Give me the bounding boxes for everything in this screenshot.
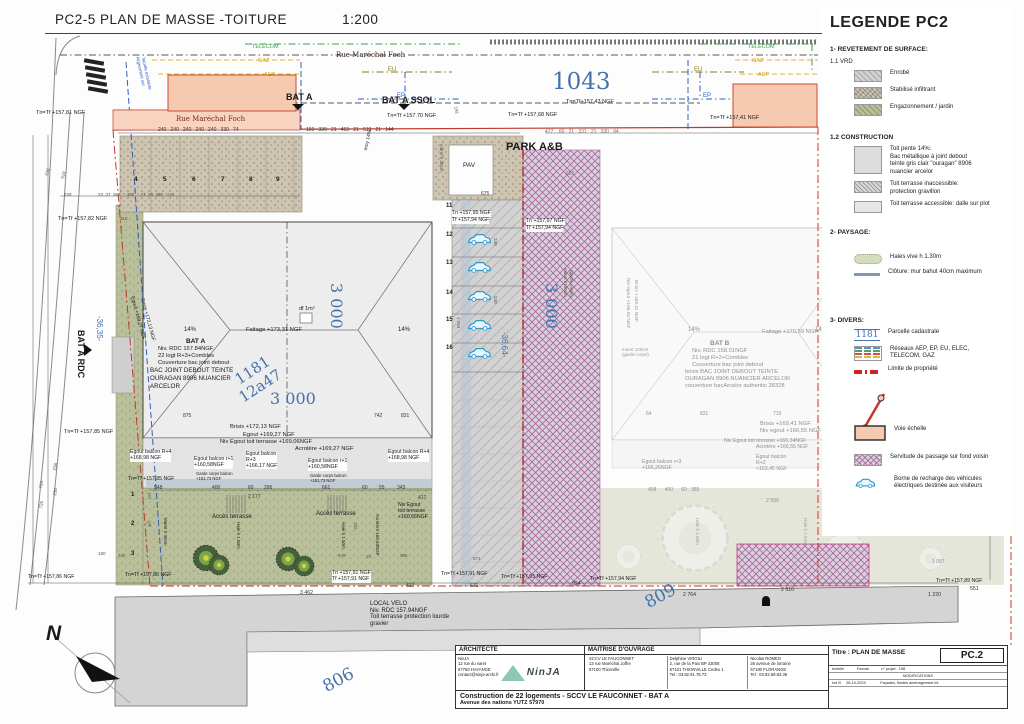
annotation-label: 3 000 (270, 390, 316, 408)
annotation-label: 3 000 (327, 283, 345, 329)
project-address: Avenue des nations YUTZ 57970 (460, 700, 824, 706)
annotation-label: Acrotère +166,55 NGF (756, 445, 808, 451)
ninja-logo: NinJA (501, 656, 561, 689)
annotation-label: Brisis +169,41 NGF (633, 280, 638, 322)
annotation-label: TELECOM (748, 44, 775, 50)
legend-title: LEGENDE PC2 (830, 14, 1010, 32)
mo-contact-1: Delphine VIRGILI 2, rue de la Paix BP 43… (667, 656, 746, 689)
annotation-label: Tn=Tf +157,86 NGF (28, 575, 74, 581)
annotation-label: 2 764 (683, 593, 696, 599)
annotation-label: Faitage +170,59 NGF (762, 329, 818, 335)
title-underline (45, 33, 835, 34)
annotation-label: Acrotère +169,27 NGF (295, 446, 353, 452)
legend-item-toit-accessible: Toit terrasse accessible: dalle sur plot (854, 201, 1010, 213)
annotation-label: Niv. RDC 158.01NGF (692, 348, 747, 354)
annotation-label: EU (388, 67, 396, 74)
annotation-label: Rue Maréchal Foch (176, 116, 245, 124)
annotation-label: muret h100cm (563, 268, 568, 297)
annotation-label: Egout balcon R+4 +168,98 NGF (388, 450, 429, 462)
annotation-label: 2 510 (781, 588, 794, 594)
legend-item-limite: Limite de propriété (854, 366, 1010, 374)
annotation-label: AEP (758, 72, 769, 78)
drawing-scale: 1:200 (342, 12, 378, 27)
logo-mountain-icon (501, 665, 525, 681)
annotation-label: 675 (481, 192, 489, 198)
legend-construction-heading: 1.2 CONSTRUCTION (830, 134, 1010, 141)
annotation-label: Tn +157,91 NGF Tf +157,91 NGF (332, 571, 371, 583)
annotation-label: Haie h 1.50m (341, 522, 346, 549)
annotation-label: 5 (163, 176, 167, 183)
page-title: PC2-5 PLAN DE MASSE -TOITURE1:200 (55, 12, 378, 27)
annotation-label: 3 000 (542, 283, 560, 329)
annotation-label: Niv egout +166,55 NGF (760, 428, 821, 434)
annotation-label: 3 (131, 551, 134, 558)
annotation-label: 400 (212, 486, 220, 492)
toit-accessible-swatch (854, 201, 882, 213)
annotation-label: BAT A RDC (76, 330, 86, 378)
annotation-label: 55 (379, 486, 385, 492)
annotation-label: 458 400 60 385 (648, 488, 699, 494)
annotation-label: brisis BAC JOINT DEBOUT TEINTE (685, 369, 778, 375)
annotation-label: Tn=Tf +157,91 NGF (441, 572, 487, 578)
plan-sheet: PC2-5 PLAN DE MASSE -TOITURE1:200 Rue Ma… (0, 0, 1024, 724)
annotation-label: Niv Egout toit terrasse +160,66NGF (398, 503, 428, 520)
parking-column (452, 200, 523, 586)
titleblock-main: ARCHITECTE NinJA 12 rue du varet 57750 H… (456, 646, 829, 708)
annotation-label: AEP (264, 72, 275, 78)
project-title: Construction de 22 logements - SCCV LE F… (460, 693, 824, 700)
legend-item-stabilise: Stabilisé infiltrant (854, 87, 1010, 99)
borne-recharge-icon (854, 476, 888, 492)
logo-text: NinJA (527, 667, 561, 678)
voie-echelle-icon (854, 390, 888, 444)
annotation-label: 216 (120, 216, 128, 221)
titleblock-right: Titre : PLAN DE MASSE PC.2 echelle Forma… (829, 646, 1007, 708)
annotation-label: Brisis +172,13 NGF (230, 424, 281, 430)
annotation-label: PARK A&B (506, 141, 563, 153)
annotation-label: 417 (418, 496, 426, 502)
legend-item-toit-pente: Toit pente 14%: Bac métallique à joint d… (854, 146, 1010, 176)
annotation-label: 4 (134, 176, 138, 183)
annotation-label: 2 177 (248, 495, 261, 501)
annotation-label: 295 (264, 486, 272, 492)
annotation-label: 240 (493, 296, 498, 304)
annotation-label: 831 (700, 412, 708, 418)
drawing-title: PC2-5 PLAN DE MASSE -TOITURE (55, 12, 287, 27)
annotation-label: PAV (463, 162, 475, 169)
reseaux-swatch (854, 346, 882, 361)
legend-item-cloture: Clôture: mur bahut 40cm maximum (854, 269, 1010, 277)
annotation-label: Niv Egout toit terrasse +169,06NGF (220, 439, 312, 445)
annotation-label: Haie h 1.50m (803, 518, 808, 545)
annotation-label: EP (703, 93, 711, 100)
annotation-label: Egout balcon r+1 +160,58NGF (308, 459, 347, 471)
annotation-label: 831 (401, 414, 409, 420)
annotation-label: 253 (145, 492, 151, 500)
mo-client: SCCV LE FAUCONNET 13 rue Maréchal Joffre… (587, 656, 665, 689)
annotation-label: Egout balcon R+3 +166,17 NGF (246, 452, 277, 469)
legend-item-reseaux: Réseaux AEP, EP, EU, ELEC, TELECOM, GAZ (854, 346, 1010, 361)
annotation-label: Accès terrasse (212, 514, 252, 521)
legend-section2-heading: 2- PAYSAGE: (830, 229, 1010, 236)
annotation-label: 22 logt R+3+Combles (158, 353, 214, 359)
revision-row: Ind B 26-10-2023 Façades, fluides aménag… (829, 680, 1007, 687)
annotation-label: 548 (154, 486, 162, 492)
annotation-label: 16 (446, 345, 453, 352)
annotation-label: OURAGAN 8906 NUANCIER (150, 376, 231, 383)
annotation-label: 60 (248, 486, 254, 492)
annotation-label: 6 (192, 176, 196, 183)
sheet-title: Titre : PLAN DE MASSE (829, 646, 937, 665)
annotation-label: 14% (398, 327, 410, 334)
annotation-label: 228 (64, 192, 72, 197)
sheet-meta: echelle Format n° projet 198 (829, 666, 1007, 673)
annotation-label: 9 (276, 176, 280, 183)
annotation-label: 21 logt R+2+Combles (692, 355, 748, 361)
modifications-heading: MODIFICATIONS (829, 673, 1007, 680)
annotation-label: 1 (131, 492, 134, 499)
annotation-label: Garde corps balcon +161,73 NGF (310, 474, 347, 483)
annotation-label: 2 (131, 521, 134, 528)
annotation-label: Tn=Tf +157,86 NGF (125, 573, 171, 579)
annotation-label: 395 (400, 553, 408, 558)
architecte-details: NinJA 12 rue du varet 57750 HAYANGE cont… (458, 656, 499, 689)
annotation-label: 15 (446, 317, 453, 324)
toit-pente-swatch (854, 146, 882, 174)
annotation-label: 340 (118, 553, 126, 558)
annotation-label: 752 (353, 522, 358, 530)
legend-item-parcelle: 1181 Parcelle cadastrale (854, 329, 1010, 341)
annotation-label: Brisis +169,41 NGF (760, 421, 811, 427)
annotation-label: 477 60 21 331 21 330 94 (545, 130, 619, 136)
annotation-label: 23 37 367 400 21 29 395 110 (98, 192, 174, 197)
annotation-label: 14% (184, 327, 196, 334)
annotation-label: Haie h 1.50m (695, 518, 700, 545)
annotation-label: BAC JOINT DEBOUT TEINTE (150, 368, 233, 375)
annotation-label: Couverture bac joint debout (158, 360, 229, 366)
annotation-label: 14 (446, 290, 453, 297)
annotation-label: EU (694, 67, 702, 74)
mo-heading: MAITRISE D'OUVRAGE (585, 646, 828, 655)
titleblock: ARCHITECTE NinJA 12 rue du varet 57750 H… (455, 645, 1008, 709)
annotation-label: -36,35- (94, 316, 103, 341)
architecte-heading: ARCHITECTE (456, 646, 584, 655)
annotation-label: Tn=Tf +157,93 NGF (501, 575, 547, 581)
annotation-label: 1043 (552, 70, 611, 96)
annotation-label: 11 (446, 203, 452, 210)
annotation-label: Tf +157,94 NGF (452, 218, 489, 224)
annotation-label: Niv. RDC 157.84NGF (158, 346, 213, 352)
annotation-label: 240 240 240 240 240 330 74 (158, 128, 239, 134)
annotation-label: 150 330 21 453 21 510 21 144 (306, 128, 394, 134)
annotation-label: OURAGAN 8906 NUANCIER ARCELOR (685, 376, 790, 382)
cloture-swatch (854, 273, 880, 276)
annotation-label: Egout +169,27 NGF (243, 432, 295, 438)
annotation-label: BAT B (710, 340, 729, 347)
annotation-label: (garde corps) (569, 270, 574, 297)
annotation-label: 742 (374, 414, 382, 420)
annotation-label: Tn=Tf +157,85 NGF (64, 429, 113, 435)
annotation-label: Egout balcon R+4 +168,98 NGF (130, 450, 171, 462)
project-banner: Construction de 22 logements - SCCV LE F… (456, 690, 828, 708)
annotation-label: Tn=Tf +157,41 NGF (710, 115, 759, 121)
annotation-label: BAT A (286, 92, 313, 102)
annotation-label: muret 100cm (garde corps) (622, 347, 649, 357)
annotation-label: couverture bacArcelor authentic 28328 (685, 383, 785, 389)
annotation-label: 1 057 (932, 560, 945, 566)
architecte-cell: ARCHITECTE NinJA 12 rue du varet 57750 H… (456, 646, 585, 690)
annotation-label: ARCELOR (150, 384, 180, 391)
annotation-label: 661 (322, 486, 330, 492)
toit-inaccessible-swatch (854, 181, 882, 193)
legend-item-servitude: Servitude de passage sur fond voisin (854, 454, 1010, 466)
legend-item-haies: Haies vive h 1.30m (854, 254, 1010, 264)
annotation-label: 13 (446, 260, 453, 267)
annotation-label: 1 794 (456, 317, 461, 328)
annotation-label: Tn +157,95 NGF (452, 211, 491, 217)
annotation-label: Garde corps balcon +161,73 NGF (196, 472, 233, 481)
annotation-label: Tn=Tf +157,81 NGF (36, 110, 85, 116)
left-street-lines (16, 36, 84, 610)
haies-swatch (854, 254, 882, 264)
annotation-label: N (46, 622, 61, 646)
annotation-label: Egout balcon r+1 +160,58NGF (194, 457, 233, 469)
annotation-label: 14% (688, 327, 700, 334)
annotation-label: BAT A (186, 338, 205, 345)
parcelle-number: 1181 (854, 329, 880, 341)
annotation-label: 875 (183, 414, 191, 420)
annotation-label: Acrotère 160,63NGF (375, 514, 380, 556)
annotation-label: TELECOM (252, 44, 279, 50)
legend-section1-heading: 1- REVETEMENT DE SURFACE: (830, 46, 1010, 53)
annotation-label: 7 (221, 176, 225, 183)
legend-panel: LEGENDE PC2 1- REVETEMENT DE SURFACE: 1.… (822, 8, 1014, 536)
annotation-label: 240 (493, 238, 498, 246)
annotation-label: Egout balcon r+3 +166,26NGF (642, 460, 681, 472)
annotation-label: 343 (397, 486, 405, 492)
annotation-label: Tn=Tf +157,89 NGF (936, 579, 982, 585)
legend-vrd-heading: 1.1 VRD (830, 59, 1010, 65)
annotation-label: Tn=Tf +157.70 NGF (387, 113, 436, 119)
sheet-number: PC.2 (940, 648, 1004, 663)
annotation-label: 160 (98, 551, 106, 556)
mo-contact-2: Nicolas ROMEO 28 avenue de lorraine 5719… (747, 656, 826, 689)
stabilise-swatch (854, 87, 882, 99)
annotation-label: Couverture bac joint debout (692, 362, 763, 368)
annotation-label: 8 (249, 176, 253, 183)
annotation-label: Tn=Tf +157,68 NGF (508, 112, 557, 118)
legend-item-toit-inaccessible: Toit terrasse inaccessible: protection g… (854, 181, 1010, 196)
annotation-label: Accès terrasse (316, 511, 356, 518)
annotation-label: 719 (773, 412, 781, 418)
annotation-label: BAT A SSOL (382, 95, 435, 105)
annotation-label: 671 (470, 584, 478, 590)
legend-item-engazonnement: Engazonnement / jardin (854, 104, 1010, 116)
annotation-label: Haie h 1.50m (236, 522, 241, 549)
annotation-label: Niv egout +166,55 NGF (625, 278, 630, 329)
annotation-label: 20 (366, 554, 371, 559)
annotation-label: Tf +157,94 NGF (526, 226, 563, 232)
annotation-label: Faitage +173,31 NGF (246, 327, 302, 333)
annotation-label: 3 462 (300, 591, 313, 597)
legend-section3-heading: 3- DIVERS: (830, 317, 1010, 324)
annotation-label: Muret h 40cm (163, 518, 168, 546)
annotation-label: 671 (473, 556, 481, 561)
annotation-label: Tn +157,97 NGF (526, 219, 565, 225)
servitude-swatch (854, 454, 882, 466)
legend-item-voie-echelle: Voie échelle (854, 390, 1010, 444)
annotation-label: 60 (362, 486, 368, 492)
annotation-label: muret h 30cm (439, 144, 444, 172)
annotation-label: 924 (572, 582, 581, 588)
annotation-label: 236 (145, 520, 151, 528)
annotation-label: GAZ (752, 58, 763, 64)
annotation-label: Tn=Tf +157,94 NGF (590, 577, 636, 583)
annotation-label: 551 (970, 587, 979, 593)
annotation-label: -36,64- (499, 332, 508, 357)
annotation-label: Rue Maréchal Foch (336, 52, 405, 60)
annotation-label: 64 (646, 412, 652, 418)
annotation-label: Egout balcon R+2 +163,45 NGF (756, 455, 787, 472)
annotation-label: LOCAL VELO Niv. RDC 157.94NGF Toit terra… (370, 601, 449, 628)
annotation-label: df 1m² (299, 306, 315, 312)
annotation-label: 2 506 (766, 499, 779, 505)
legend-item-borne: Borne de recharge des véhicules électriq… (854, 476, 1010, 492)
annotation-label: 417 (406, 584, 414, 590)
annotation-label: GAZ (258, 58, 269, 64)
annotation-label: 12 (446, 232, 453, 239)
annotation-label: Tn=Tf +157,82 NGF (58, 216, 107, 222)
maitrise-ouvrage-cell: MAITRISE D'OUVRAGE SCCV LE FAUCONNET 13 … (585, 646, 828, 690)
annotation-label: 1 220 (928, 593, 941, 599)
enrobe-swatch (854, 70, 882, 82)
annotation-label: 449 (338, 553, 346, 558)
annotation-label: Tn=Tf+157.43 NGF (566, 99, 614, 105)
annotation-label: 627 (566, 172, 574, 178)
limite-swatch (854, 370, 880, 374)
legend-item-enrobe: Enrobé (854, 70, 1010, 82)
annotation-label: Tn=Tf +157,85 NGF (128, 477, 174, 483)
engazonnement-swatch (854, 104, 882, 116)
crosswalk-icon (84, 58, 108, 93)
